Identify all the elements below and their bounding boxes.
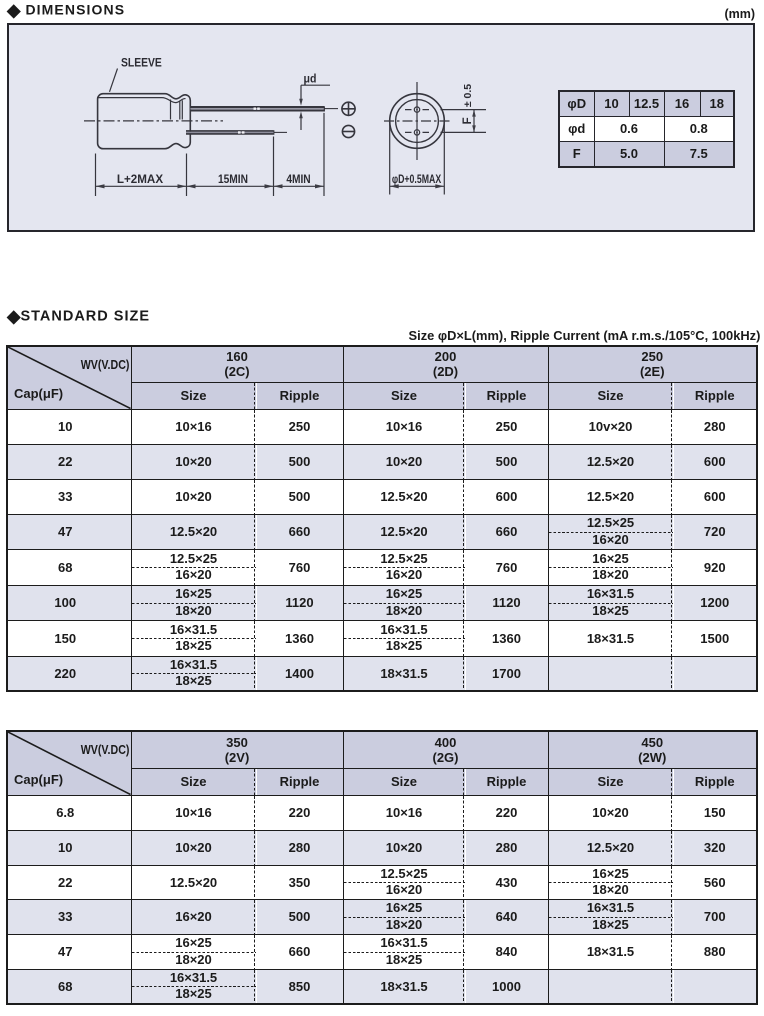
svg-text:± 0.5: ± 0.5: [462, 84, 474, 107]
svg-text:L+2MAX: L+2MAX: [117, 172, 163, 186]
svg-text:15MIN: 15MIN: [218, 173, 248, 186]
svg-text:μd: μd: [304, 73, 317, 86]
svg-text:φD+0.5MAX: φD+0.5MAX: [392, 173, 441, 187]
svg-text:SLEEVE: SLEEVE: [121, 57, 162, 70]
svg-text:F: F: [462, 117, 474, 124]
svg-text:4MIN: 4MIN: [286, 173, 310, 186]
